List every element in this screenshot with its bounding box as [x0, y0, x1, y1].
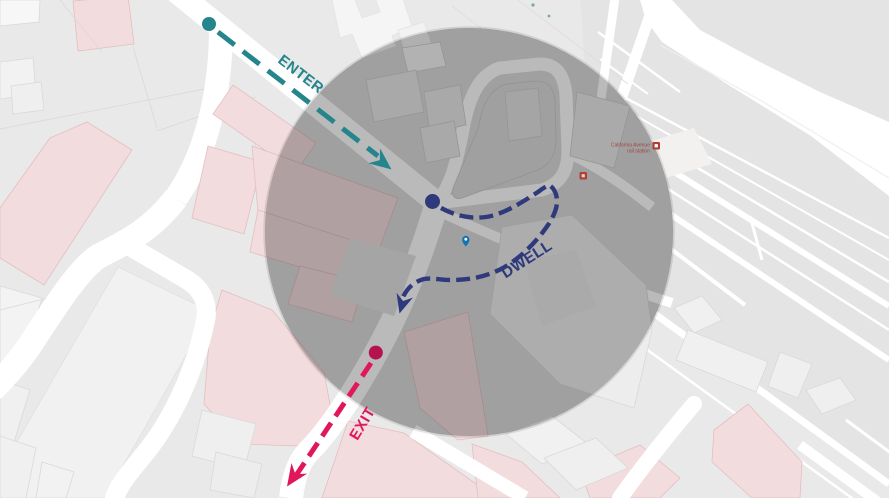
svg-text:rail station: rail station: [627, 149, 650, 155]
